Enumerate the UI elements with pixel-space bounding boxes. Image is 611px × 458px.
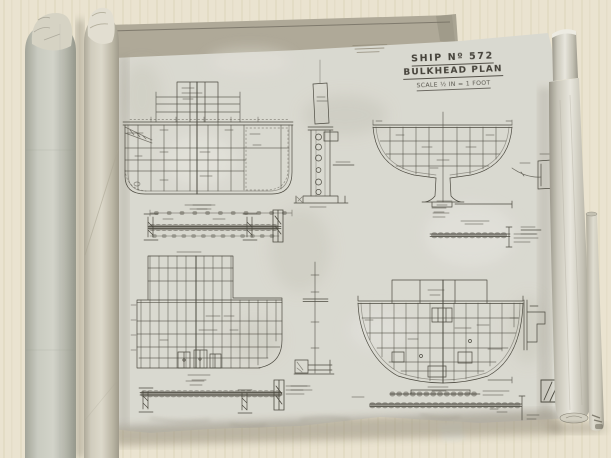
plan-title: BULKHEAD PLAN: [403, 64, 503, 80]
blueprint-photo-svg: [0, 0, 611, 458]
title-block: SHIP Nº 572 BULKHEAD PLAN SCALE ½ IN = 1…: [398, 50, 507, 92]
photo-of-bulkhead-plan: SHIP Nº 572 BULKHEAD PLAN SCALE ½ IN = 1…: [0, 0, 611, 458]
vignette: [0, 0, 611, 458]
